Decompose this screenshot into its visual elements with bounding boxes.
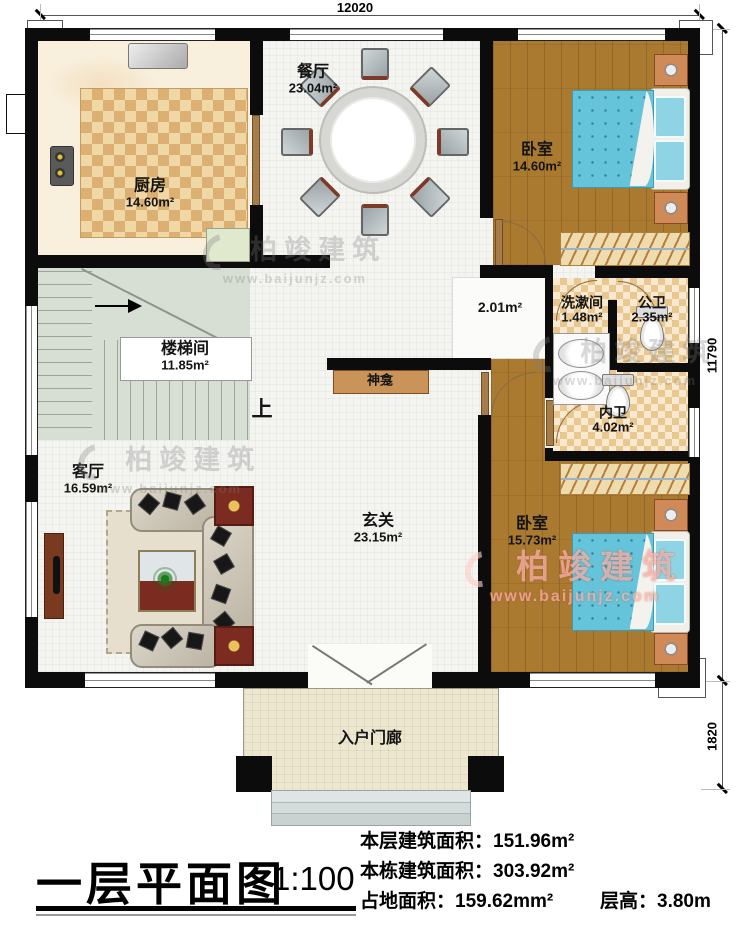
room-label-stairwell: 楼梯间 11.85m² (161, 340, 209, 373)
watermark-logo-icon (196, 227, 244, 276)
window (688, 408, 700, 457)
stairs-arrow-icon (128, 299, 142, 313)
kitchen-sink-icon (128, 43, 188, 69)
watermark-brand: 柏竣建筑 (180, 228, 410, 271)
wall-segment (25, 28, 38, 306)
watermark-brand: 柏竣建筑 (520, 330, 730, 373)
room-area: 23.04m² (289, 82, 337, 97)
watermark-brand: 柏竣建筑 (455, 540, 695, 588)
porch-pillar (468, 756, 504, 792)
dimension-top-label: 12020 (320, 0, 390, 15)
wardrobe (560, 232, 690, 266)
nightstand (654, 633, 688, 665)
dining-chair (281, 128, 313, 156)
room-label-bedroom-top: 卧室 14.60m² (513, 141, 561, 174)
stat-building-area: 本栋建筑面积：303.92m² (360, 856, 574, 883)
room-label-washroom: 洗漱间 1.48m² (561, 294, 603, 325)
room-name: 卧室 (508, 515, 556, 533)
room-area: 1.48m² (561, 311, 603, 326)
blanket-fold (630, 90, 654, 186)
tv-icon (53, 556, 60, 594)
dining-chair (437, 128, 469, 156)
burner-icon (55, 152, 65, 162)
title-underline-thin (36, 914, 356, 916)
watermark: 柏竣建筑 www.baijunjz.com (520, 330, 730, 388)
watermark-url: www.baijunjz.com (520, 373, 730, 388)
dining-chair (361, 48, 389, 80)
sofa-pillow (186, 632, 205, 651)
wall-segment (595, 265, 688, 278)
stat-floor-area: 本层建筑面积：151.96m² (360, 826, 574, 853)
room-name: 内卫 (592, 404, 633, 420)
watermark: 柏竣建筑 www.baijunjz.com (55, 438, 285, 496)
dimension-porch-label: 1820 (705, 713, 720, 761)
room-label-ensuite-bath: 内卫 4.02m² (592, 404, 633, 435)
room-name: 餐厅 (289, 63, 337, 81)
room-name: 卧室 (513, 141, 561, 159)
room-name: 玄关 (354, 512, 402, 530)
watermark-url: www.baijunjz.com (180, 271, 410, 286)
porch-pillar (236, 756, 272, 792)
plant-icon (155, 569, 175, 589)
page-title: 一层平面图 (36, 848, 286, 914)
dimension-porch-line (722, 682, 723, 790)
up-text: 上 (252, 398, 273, 422)
wall-segment (25, 455, 38, 502)
floor-plan-canvas: 12020 11790 1820 (0, 0, 750, 929)
side-table (214, 626, 254, 666)
hall-area-label: 2.01m² (478, 299, 522, 315)
watermark-red: 柏竣建筑 www.baijunjz.com (455, 540, 695, 606)
kitchen-door-leaf (252, 115, 260, 207)
room-name: 公卫 (631, 294, 672, 310)
scale-label: 1:100 (272, 860, 355, 898)
watermark-brand: 柏竣建筑 (55, 438, 285, 481)
wall-segment (443, 28, 518, 41)
stairs-up-label: 上 (252, 398, 273, 422)
stat-floor-height: 层高：3.80m (600, 886, 711, 913)
window (25, 502, 38, 617)
extension-line (701, 789, 730, 790)
room-area: 14.60m² (126, 196, 174, 211)
stat-value: 151.96m² (493, 831, 574, 852)
wall-segment (480, 265, 553, 278)
room-name: 神龛 (367, 374, 393, 389)
wall-segment (250, 41, 263, 115)
room-label-dining: 餐厅 23.04m² (289, 63, 337, 96)
room-area: 4.02m² (592, 421, 633, 436)
room-area: 14.60m² (513, 160, 561, 175)
dining-table (321, 88, 425, 192)
nightstand (654, 499, 688, 531)
wall-segment (25, 672, 85, 688)
hallway-door-leaf (481, 372, 489, 416)
wall-segment (480, 41, 493, 218)
watermark-url: www.baijunjz.com (55, 481, 285, 496)
stat-label: 占地面积： (360, 891, 455, 912)
room-label-public-bath: 公卫 2.35m² (631, 294, 672, 325)
wall-segment (545, 451, 688, 461)
room-label-kitchen: 厨房 14.60m² (126, 177, 174, 210)
room-label-foyer: 玄关 23.15m² (354, 512, 402, 545)
stat-value: 159.62mm² (455, 891, 553, 912)
watermark-logo-icon (458, 545, 506, 594)
window (290, 28, 443, 41)
stat-land-area: 占地面积：159.62mm² (360, 886, 553, 913)
watermark-url: www.baijunjz.com (455, 588, 695, 606)
pillow (654, 140, 686, 182)
window (25, 306, 38, 455)
room-area: 23.15m² (354, 531, 402, 546)
wall-segment (215, 672, 308, 688)
shrine-wall (327, 358, 491, 370)
window (85, 672, 215, 688)
room-area: 2.35m² (631, 311, 672, 326)
wall-segment (655, 672, 700, 688)
room-area: 2.01m² (478, 299, 522, 315)
dimension-top-line (40, 15, 700, 16)
window (518, 28, 665, 41)
watermark-logo-icon (526, 329, 574, 378)
room-name: 入户门廊 (338, 730, 402, 748)
watermark: 柏竣建筑 www.baijunjz.com (180, 228, 410, 286)
nightstand (654, 192, 688, 224)
wardrobe (560, 463, 690, 495)
nightstand (654, 54, 688, 86)
room-name: 厨房 (126, 177, 174, 195)
room-area: 11.85m² (161, 359, 209, 374)
room-name: 楼梯间 (161, 340, 209, 358)
stat-label: 本层建筑面积： (360, 831, 493, 852)
stairs-left-flight (38, 268, 92, 440)
stairs-arrow-line (95, 305, 129, 307)
kitchen-rug (80, 88, 248, 238)
wall-segment (215, 28, 290, 41)
wall-segment (432, 672, 530, 688)
ensuite-door-leaf (546, 400, 554, 446)
title-underline (36, 906, 356, 911)
room-name: 洗漱间 (561, 294, 603, 310)
burner-icon (55, 168, 65, 178)
porch-steps (271, 790, 471, 826)
shrine-label: 神龛 (367, 374, 393, 389)
room-label-porch: 入户门廊 (338, 730, 402, 748)
stat-value: 303.92m² (493, 861, 574, 882)
pillow (654, 96, 686, 138)
watermark-logo-icon (71, 437, 119, 486)
stat-value: 3.80m (657, 891, 711, 912)
stat-label: 本栋建筑面积： (360, 861, 493, 882)
window (530, 672, 655, 688)
window (90, 28, 215, 41)
stat-label: 层高： (600, 891, 657, 912)
